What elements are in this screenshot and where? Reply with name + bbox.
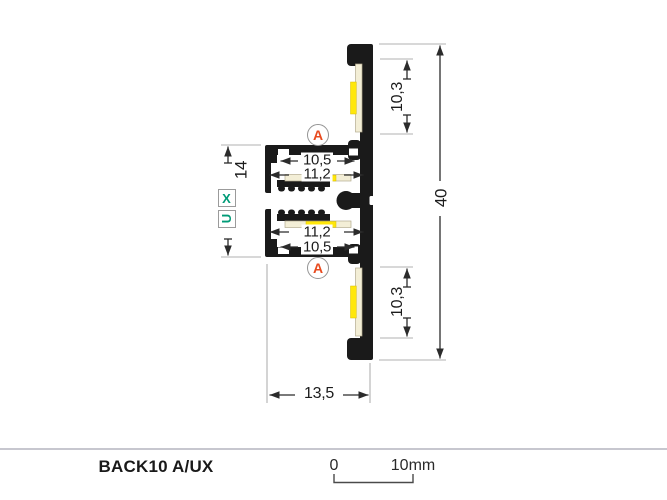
led-strip-bottom-vertical <box>351 286 357 318</box>
dim-upper-channel-outer-width: 11,2 <box>302 167 333 182</box>
dim-lower-channel-outer-width: 11,2 <box>302 225 333 240</box>
slot-marker-u: U <box>218 210 236 228</box>
profile-cross-section-drawing: 40 10,3 10,3 14 13,5 10,5 11,2 11,2 10,5… <box>0 0 667 500</box>
led-strip-top-vertical <box>351 82 357 114</box>
dim-lower-channel-inner-width: 10,5 <box>301 240 333 255</box>
dim-overall-width: 13,5 <box>302 386 336 402</box>
bottom-flange <box>347 338 373 360</box>
profile-geometry <box>0 0 667 500</box>
product-name: BACK10 A/UX <box>99 457 214 477</box>
dim-led-zone-bottom: 10,3 <box>390 287 406 317</box>
dim-slot-height: 14 <box>233 161 250 179</box>
section-marker-a-bottom: A <box>307 257 329 279</box>
footer-divider <box>0 448 667 450</box>
section-marker-a-top-label: A <box>313 127 323 143</box>
screw-boss-neck <box>351 193 362 208</box>
technical-drawing-page: 40 10,3 10,3 14 13,5 10,5 11,2 11,2 10,5… <box>0 0 667 500</box>
dim-overall-height: 40 <box>433 189 450 207</box>
scale-bar-bracket <box>328 472 420 486</box>
section-marker-a-top: A <box>307 124 329 146</box>
dimension-lines <box>224 46 440 396</box>
section-marker-a-bottom-label: A <box>313 260 323 276</box>
slot-marker-x-label: X <box>222 191 231 206</box>
slot-marker-x: X <box>218 189 236 207</box>
slot-marker-u-label: U <box>220 214 233 223</box>
dim-led-zone-top: 10,3 <box>390 82 406 112</box>
